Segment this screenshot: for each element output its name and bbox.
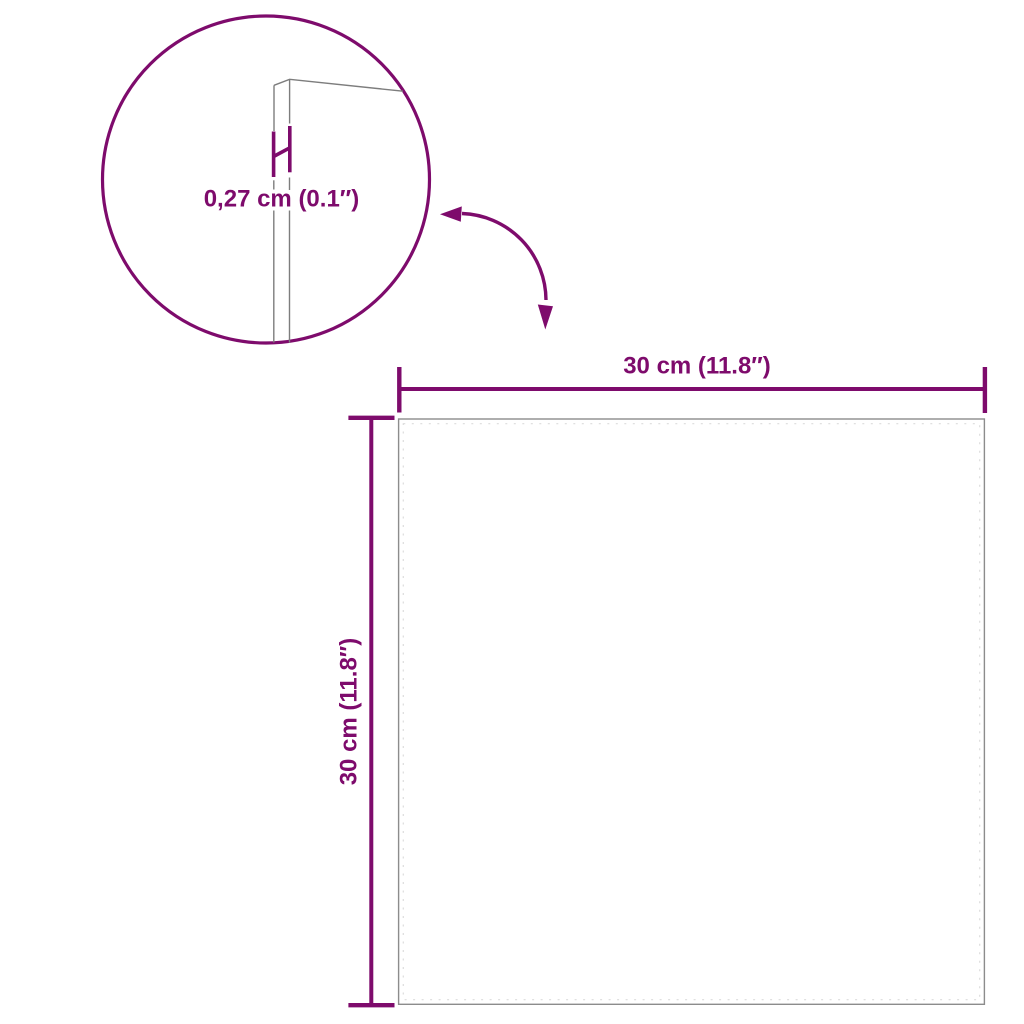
svg-text:0,27 cm (0.1″): 0,27 cm (0.1″) — [204, 186, 360, 213]
svg-text:30 cm (11.8″): 30 cm (11.8″) — [336, 638, 363, 786]
svg-text:30 cm (11.8″): 30 cm (11.8″) — [623, 353, 771, 380]
